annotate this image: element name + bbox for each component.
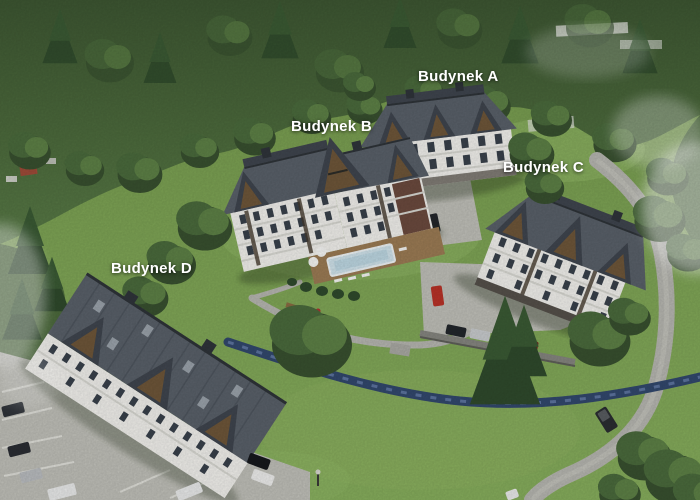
photo-grain — [0, 0, 700, 500]
aerial-photo: Budynek A Budynek B Budynek C Budynek D — [0, 0, 700, 500]
label-building-d: Budynek D — [111, 260, 192, 277]
label-building-a: Budynek A — [418, 68, 499, 85]
label-building-b: Budynek B — [291, 118, 372, 135]
label-building-c: Budynek C — [503, 159, 584, 176]
aerial-scene — [0, 0, 700, 500]
